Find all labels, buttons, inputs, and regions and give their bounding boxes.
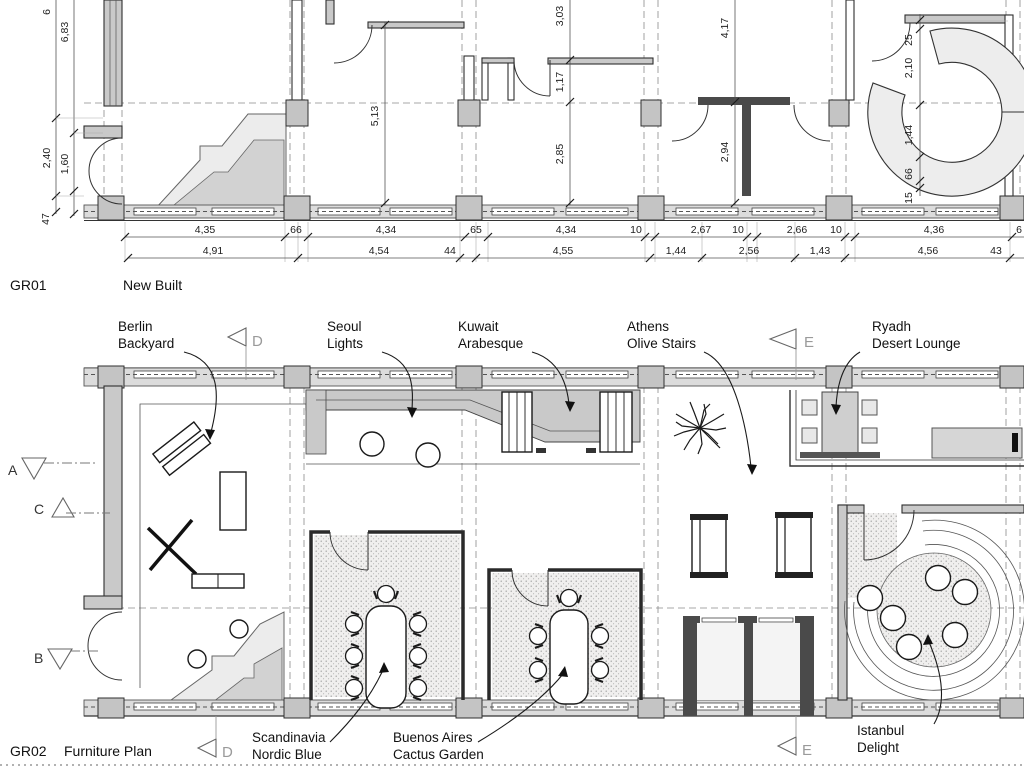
istanbul-room bbox=[838, 505, 1024, 700]
dim-label: 25 bbox=[903, 34, 915, 46]
label-ryadh: Ryadh bbox=[872, 319, 911, 334]
buenos-aires-room bbox=[489, 570, 641, 704]
gr01-dims-left: 6 2,40 47 6,83 1,60 bbox=[40, 0, 103, 225]
marker-c-triangle bbox=[52, 498, 74, 517]
facade-wall-top bbox=[84, 366, 1024, 388]
dim-label: 2,94 bbox=[719, 142, 731, 163]
pouf bbox=[881, 606, 906, 631]
marker-e-bottom bbox=[778, 737, 796, 755]
gr01-dim-chains: 4,35 66 4,34 65 4,34 10 2,67 10 2,66 10 … bbox=[121, 222, 1024, 262]
dim-label: 4,36 bbox=[924, 224, 945, 236]
label-kuwait: Arabesque bbox=[458, 336, 523, 351]
seoul-counter bbox=[306, 390, 640, 467]
dim-label: 10 bbox=[830, 224, 842, 236]
stool bbox=[360, 432, 384, 456]
pouf bbox=[897, 635, 922, 660]
label-athens: Athens bbox=[627, 319, 669, 334]
facade-wall-bottom bbox=[84, 698, 1024, 718]
dim-label: 43 bbox=[990, 245, 1002, 257]
dim-label: 2,85 bbox=[554, 144, 566, 165]
dim-label: 1,44 bbox=[666, 245, 687, 257]
dim-label: 47 bbox=[40, 213, 52, 225]
dim-label: 4,56 bbox=[918, 245, 939, 257]
marker-d-letter: D bbox=[222, 744, 233, 761]
stool bbox=[188, 650, 206, 668]
stool bbox=[230, 620, 248, 638]
stair-ramp bbox=[124, 114, 286, 212]
dim-label: 6 bbox=[41, 9, 53, 15]
pouf bbox=[858, 586, 883, 611]
dim-label: 4,54 bbox=[369, 245, 390, 257]
label-buenos-aires: Cactus Garden bbox=[393, 747, 484, 762]
dim-label: 4,55 bbox=[553, 245, 574, 257]
dim-label: 2,66 bbox=[787, 224, 808, 236]
dim-label: 1,60 bbox=[59, 154, 71, 175]
dim-label: 2,10 bbox=[903, 58, 915, 79]
dim-label: 4,34 bbox=[376, 224, 397, 236]
scandinavia-room bbox=[311, 532, 463, 708]
label-berlin: Backyard bbox=[118, 336, 174, 351]
dim-label: 66 bbox=[290, 224, 302, 236]
marker-d-top bbox=[228, 328, 246, 346]
label-scandinavia: Scandinavia bbox=[252, 730, 326, 745]
gr02-title: Furniture Plan bbox=[64, 743, 152, 759]
display-table bbox=[220, 472, 246, 530]
dim-label: 6,83 bbox=[59, 22, 71, 43]
gr02-code: GR02 bbox=[10, 743, 47, 759]
dim-label: 15 bbox=[903, 192, 915, 204]
marker-e-letter: E bbox=[802, 742, 812, 759]
gr02-plan: A C B D E D E Berlin Backyard Seoul Ligh bbox=[0, 319, 1024, 765]
label-scandinavia: Nordic Blue bbox=[252, 747, 322, 762]
marker-b-triangle bbox=[48, 649, 72, 669]
label-berlin: Berlin bbox=[118, 319, 153, 334]
stool bbox=[416, 443, 440, 467]
marker-a-triangle bbox=[22, 458, 46, 479]
berlin-furniture bbox=[148, 422, 248, 668]
daybed bbox=[932, 428, 1022, 458]
marker-d-bottom bbox=[198, 739, 216, 757]
marker-d-letter: D bbox=[252, 333, 263, 350]
dim-label: 6 bbox=[1016, 224, 1022, 236]
dim-label: 1,44 bbox=[903, 125, 915, 146]
conference-table bbox=[550, 610, 588, 704]
dim-label: 65 bbox=[470, 224, 482, 236]
dim-label: 5,13 bbox=[369, 106, 381, 127]
dim-label: 10 bbox=[732, 224, 744, 236]
marker-a-letter: A bbox=[8, 462, 18, 478]
left-wall-entrance bbox=[84, 386, 122, 680]
dim-label: 44 bbox=[444, 245, 456, 257]
dim-label: 4,35 bbox=[195, 224, 216, 236]
gr01-title: New Built bbox=[123, 277, 182, 293]
tree-symbol bbox=[674, 402, 726, 454]
ryadh-lounge bbox=[790, 390, 1024, 466]
marker-e-top bbox=[770, 329, 796, 349]
gr01-dims-interior: 5,13 3,03 1,17 2,85 4,17 2,94 bbox=[369, 0, 739, 207]
stair-ramp bbox=[152, 612, 284, 714]
label-buenos-aires: Buenos Aires bbox=[393, 730, 473, 745]
pouf bbox=[953, 580, 978, 605]
dim-label: 2,40 bbox=[41, 148, 53, 169]
pouf bbox=[926, 566, 951, 591]
floor-plan-sheet: 6 2,40 47 6,83 1,60 5,13 3,03 1,17 2,85 … bbox=[0, 0, 1024, 768]
dim-label: 2,67 bbox=[691, 224, 712, 236]
label-istanbul: Istanbul bbox=[857, 723, 904, 738]
marker-c-letter: C bbox=[34, 501, 44, 517]
circular-stair bbox=[868, 28, 1024, 196]
dim-label: 4,17 bbox=[719, 18, 731, 39]
gr01-code: GR01 bbox=[10, 277, 47, 293]
dim-label: 3,03 bbox=[554, 6, 566, 27]
marker-e-letter: E bbox=[804, 334, 814, 351]
dim-label: 2,56 bbox=[739, 245, 760, 257]
dim-label: 1,43 bbox=[810, 245, 831, 257]
athens-armchairs bbox=[690, 512, 813, 578]
label-kuwait: Kuwait bbox=[458, 319, 499, 334]
conference-table bbox=[366, 606, 406, 708]
label-istanbul: Delight bbox=[857, 740, 899, 755]
marker-b-letter: B bbox=[34, 650, 43, 666]
pouf bbox=[943, 623, 968, 648]
dim-label: 4,34 bbox=[556, 224, 577, 236]
dim-label: 4,91 bbox=[203, 245, 224, 257]
dim-label: 66 bbox=[903, 168, 915, 180]
label-athens: Olive Stairs bbox=[627, 336, 696, 351]
label-seoul: Lights bbox=[327, 336, 363, 351]
label-ryadh: Desert Lounge bbox=[872, 336, 961, 351]
dim-label: 1,17 bbox=[554, 72, 566, 93]
dim-label: 10 bbox=[630, 224, 642, 236]
label-seoul: Seoul bbox=[327, 319, 362, 334]
gr01-plan: 6 2,40 47 6,83 1,60 5,13 3,03 1,17 2,85 … bbox=[10, 0, 1024, 293]
